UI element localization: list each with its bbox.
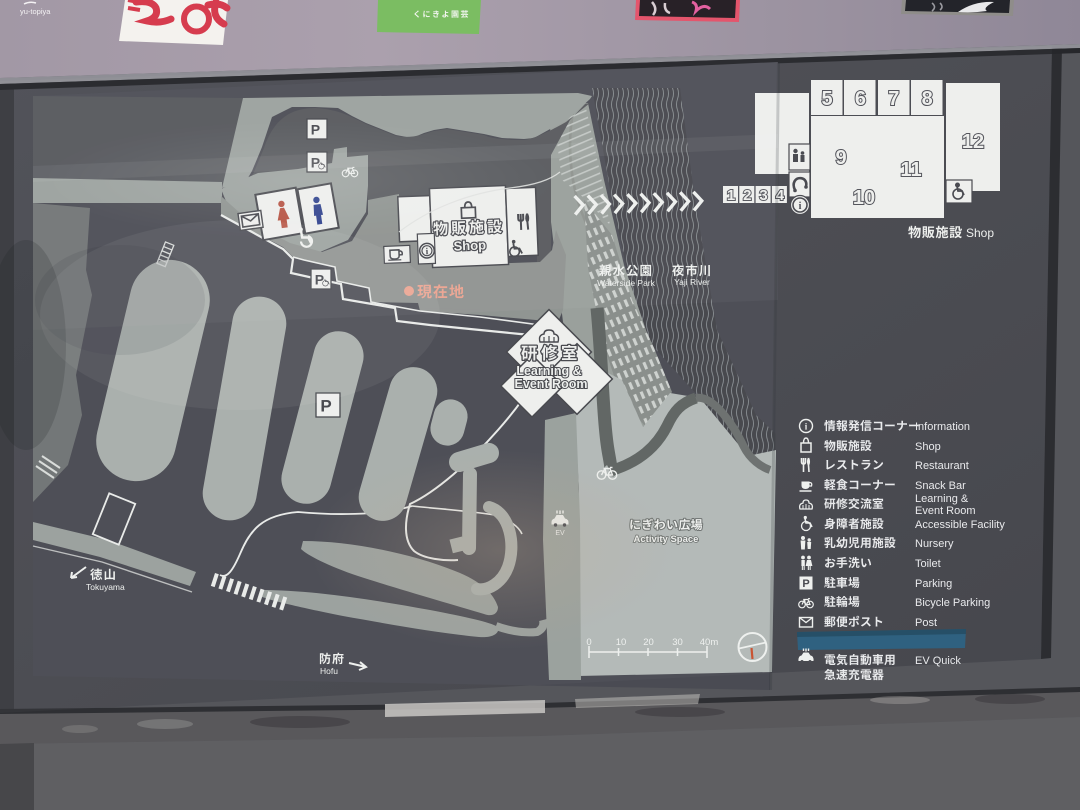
svg-text:yu-topiya: yu-topiya — [20, 7, 51, 16]
